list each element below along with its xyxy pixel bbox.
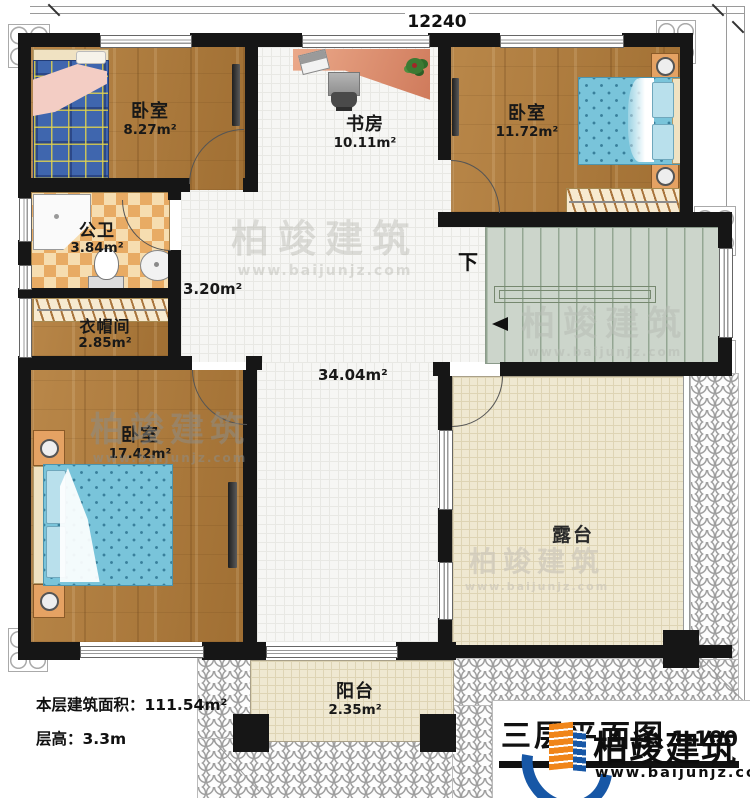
- wall: [190, 33, 302, 47]
- window: [19, 298, 32, 358]
- room-label-study: 书房 10.11m²: [315, 112, 415, 154]
- window: [100, 35, 192, 48]
- lamp-icon: [40, 592, 59, 611]
- floor-height-label: 层高：: [36, 730, 83, 748]
- wall: [18, 642, 80, 660]
- wall: [18, 288, 181, 298]
- wall: [245, 47, 258, 192]
- stair-handrail-inner: [499, 290, 651, 299]
- floor-area-annotation: 本层建筑面积：111.54m²: [36, 693, 227, 715]
- terrace-railing: [683, 376, 690, 645]
- room-name: 卧室: [131, 102, 169, 122]
- tv-panel: [228, 482, 237, 568]
- wall: [433, 362, 450, 376]
- balcony-door-window: [266, 646, 398, 658]
- lamp-icon: [656, 167, 675, 186]
- room-area: 10.11m²: [334, 136, 397, 151]
- window: [19, 198, 32, 242]
- stair-direction-label: 下: [458, 246, 484, 270]
- room-area: 2.85m²: [78, 336, 131, 351]
- tv-panel: [452, 78, 459, 136]
- wall: [438, 508, 452, 562]
- room-label-bedroom2: 卧室 11.72m²: [477, 100, 577, 144]
- room-name: 衣帽间: [79, 318, 130, 336]
- wall: [18, 240, 31, 265]
- desk-chair: [331, 92, 357, 108]
- hall-lower-floor: [257, 362, 438, 642]
- floor-height-annotation: 层高：3.3m: [36, 727, 126, 749]
- tv-panel: [232, 64, 240, 126]
- floor-area-label: 本层建筑面积：: [36, 696, 145, 714]
- room-area: 11.72m²: [496, 125, 559, 140]
- hall-area-label: 34.04m²: [318, 366, 388, 384]
- nightstand: [651, 53, 679, 79]
- wall: [18, 356, 31, 658]
- bed-pillow: [76, 51, 106, 64]
- room-label-bedroom3: 卧室 17.42m²: [95, 424, 185, 464]
- dimension-line-right: [744, 6, 745, 776]
- window: [719, 248, 733, 338]
- window: [439, 430, 453, 510]
- bed-pillow: [652, 124, 674, 160]
- logo-building-icon: [549, 722, 573, 771]
- nightstand: [33, 584, 65, 618]
- sink-drain: [154, 262, 159, 267]
- room-area: 3.84m²: [70, 241, 123, 256]
- plant-flower: [412, 63, 417, 68]
- room-name: 公卫: [79, 222, 115, 241]
- room-name: 卧室: [508, 104, 546, 124]
- wall: [18, 33, 31, 198]
- title-block: 三层平面图 1:100 柏竣建筑 www.baijunjz.com: [492, 700, 750, 798]
- desk-chair-base: [336, 107, 352, 111]
- room-label-terrace: 露台: [552, 520, 594, 547]
- column: [663, 630, 699, 668]
- window: [302, 35, 430, 48]
- stair-direction-arrow: [492, 317, 508, 331]
- room-name: 卧室: [121, 426, 159, 446]
- wall: [438, 33, 451, 160]
- dimension-line-top: [30, 6, 744, 7]
- wall: [438, 212, 732, 227]
- room-label-bedroom1: 卧室 8.27m²: [100, 98, 200, 142]
- window: [500, 35, 624, 48]
- wall: [243, 178, 258, 192]
- window: [80, 646, 204, 658]
- roof-tile-apron: [690, 373, 739, 660]
- lamp-icon: [40, 439, 59, 458]
- window: [19, 265, 32, 290]
- nightstand: [33, 430, 65, 466]
- column: [420, 714, 456, 752]
- cloakroom-rod: [37, 309, 167, 311]
- room-area: 17.42m²: [109, 447, 172, 462]
- room-label-bathroom: 公卫 3.84m²: [64, 220, 130, 258]
- logo-url-text: www.baijunjz.com: [595, 765, 750, 781]
- wall: [246, 356, 262, 370]
- room-label-cloakroom: 衣帽间 2.85m²: [68, 316, 142, 354]
- dimension-top-value: 12240: [405, 12, 469, 32]
- corridor-area-label: 3.20m²: [183, 280, 242, 298]
- nightstand: [651, 163, 679, 189]
- logo-building-icon: [573, 730, 586, 771]
- floor-plan-canvas: 12240 12320: [0, 0, 750, 798]
- wall: [718, 227, 732, 248]
- room-area: 2.35m²: [328, 703, 381, 718]
- lamp-icon: [656, 57, 675, 76]
- shower-drain: [54, 214, 59, 219]
- room-name: 书房: [346, 115, 384, 135]
- column: [233, 714, 269, 752]
- wardrobe-rod: [569, 201, 677, 203]
- wall: [396, 642, 456, 660]
- room-name: 阳台: [336, 682, 374, 702]
- wall: [680, 33, 693, 215]
- bed-blanket: [628, 78, 654, 162]
- room-label-balcony: 阳台 2.35m²: [305, 678, 405, 722]
- room-area: 8.27m²: [123, 123, 176, 138]
- floor-height-value: 3.3m: [83, 730, 127, 748]
- wall: [500, 362, 732, 376]
- wall: [202, 642, 266, 660]
- dimension-tick: [732, 21, 745, 34]
- wall: [168, 192, 181, 200]
- wall: [438, 376, 452, 430]
- wall: [18, 178, 190, 192]
- bed-pillow: [652, 82, 674, 118]
- wall: [18, 356, 192, 370]
- terrace-floor: [452, 376, 685, 647]
- floor-area-value: 111.54m²: [145, 696, 228, 714]
- window: [439, 562, 453, 620]
- dimension-line-top: [30, 13, 744, 14]
